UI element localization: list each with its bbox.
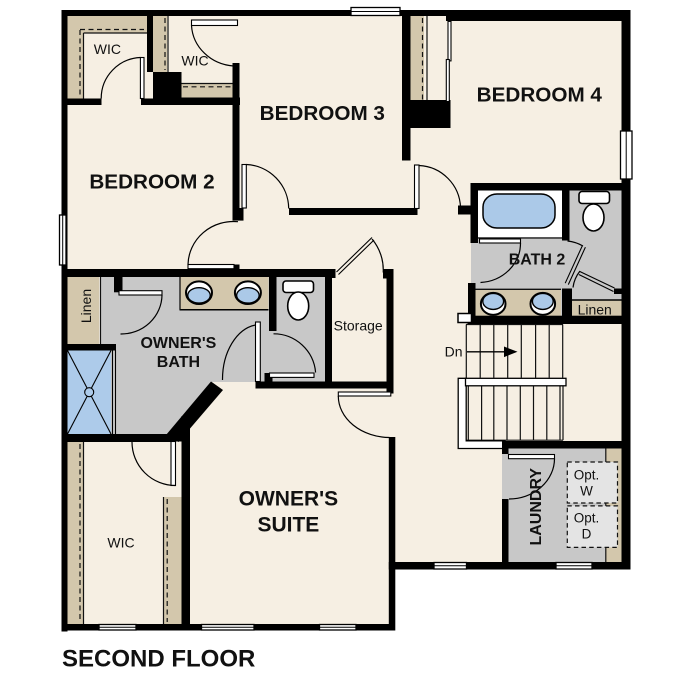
svg-text:Linen: Linen xyxy=(78,289,94,323)
svg-text:D: D xyxy=(582,527,592,542)
svg-text:Dn: Dn xyxy=(445,344,463,360)
svg-text:W: W xyxy=(580,484,593,499)
svg-text:BEDROOM 2: BEDROOM 2 xyxy=(89,171,214,194)
svg-text:LAUNDRY: LAUNDRY xyxy=(528,468,545,546)
svg-text:BEDROOM 3: BEDROOM 3 xyxy=(260,102,385,125)
svg-text:BATH 2: BATH 2 xyxy=(509,252,566,269)
svg-text:BATH: BATH xyxy=(157,354,200,371)
svg-text:BEDROOM 4: BEDROOM 4 xyxy=(477,84,603,107)
svg-text:WIC: WIC xyxy=(107,535,134,551)
svg-text:Opt.: Opt. xyxy=(574,468,600,483)
svg-text:SECOND FLOOR: SECOND FLOOR xyxy=(62,646,255,673)
svg-text:WIC: WIC xyxy=(94,41,121,57)
svg-text:Opt.: Opt. xyxy=(574,511,600,526)
svg-text:OWNER'S: OWNER'S xyxy=(140,335,216,352)
svg-text:OWNER'S: OWNER'S xyxy=(239,488,339,511)
svg-text:SUITE: SUITE xyxy=(257,514,319,537)
svg-text:Storage: Storage xyxy=(334,318,383,334)
svg-text:Linen: Linen xyxy=(578,302,612,318)
svg-text:WIC: WIC xyxy=(181,53,208,69)
